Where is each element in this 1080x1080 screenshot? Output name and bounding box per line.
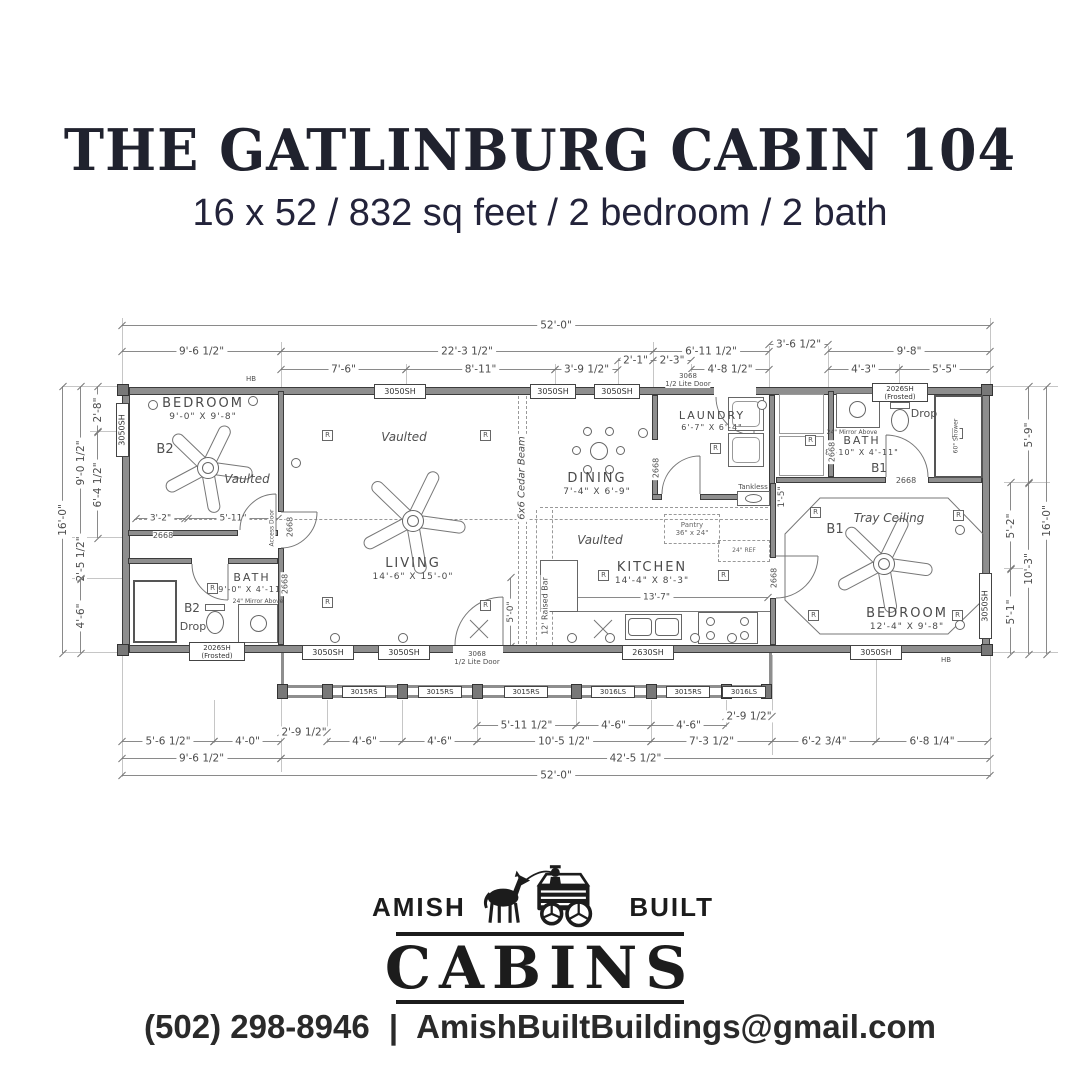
door-label-3068: 30681/2 Lite Door <box>454 650 499 666</box>
wall-light <box>955 525 965 535</box>
hose-bib: HB <box>246 375 256 383</box>
ceiling-note: Vaulted <box>381 430 426 444</box>
porch-post <box>322 684 333 699</box>
porch-post <box>571 684 582 699</box>
toilet <box>891 409 909 432</box>
window-2630sh: 2630SH <box>622 645 674 660</box>
rail-3015rs: 3015RS <box>504 686 548 698</box>
shower <box>133 580 177 643</box>
cedar-beam-label: 6x6 Cedar Beam <box>517 434 528 522</box>
toilet <box>206 611 224 634</box>
pantry: Pantry36" x 24" <box>664 514 720 544</box>
window-3050sh: 3050SH <box>594 384 640 399</box>
door-arc <box>662 456 700 494</box>
wall-light <box>330 633 340 643</box>
refrigerator: 24" REF <box>718 540 770 562</box>
wall-light <box>638 428 648 438</box>
wall-light <box>148 400 158 410</box>
kitchen-sink <box>628 618 652 636</box>
vanity-sink <box>250 615 267 632</box>
door-code: 2668 <box>828 440 837 464</box>
mirror-note: 24" Mirror Above <box>827 429 878 436</box>
porch-post <box>472 684 483 699</box>
wall-light <box>398 633 408 643</box>
wall-light <box>727 633 737 643</box>
room-kitchen: KITCHEN14'-4" X 8'-3" <box>615 560 689 586</box>
wall-light <box>248 396 258 406</box>
wall-light <box>605 633 615 643</box>
rail-3016ls: 3016LS <box>591 686 635 698</box>
window-3050sh: 3050SH <box>850 645 902 660</box>
rail-3015rs: 3015RS <box>666 686 710 698</box>
burner <box>740 631 749 640</box>
door-label-3068: 30681/2 Lite Door <box>665 372 710 388</box>
window-2026sh-frosted: 2026SH(Frosted) <box>872 383 928 402</box>
recessed-light: R <box>480 430 491 441</box>
hose-bib: HB <box>941 656 951 664</box>
room-laundry: LAUNDRY6'-7" X 6'-4" <box>679 409 745 432</box>
tankless-water-heater <box>745 494 762 503</box>
burner <box>706 631 715 640</box>
corner-post <box>117 644 129 656</box>
flyer-page: THE GATLINBURG CABIN 104 16 x 52 / 832 s… <box>0 0 1080 1080</box>
door-code: 2668 <box>281 572 290 596</box>
dimension: 1'-5" <box>777 484 787 509</box>
closet-shelf <box>779 436 824 476</box>
room-living: LIVING14'-6" X 15'-0" <box>373 556 454 582</box>
wall-light <box>567 633 577 643</box>
rail-3015rs: 3015RS <box>418 686 462 698</box>
rail-3016ls: 3016LS <box>722 686 766 698</box>
room-tag: B2 <box>156 442 173 457</box>
recessed-light: R <box>810 507 821 518</box>
room-tag: B2 <box>184 601 200 615</box>
counter-x <box>470 620 488 638</box>
recessed-light: R <box>207 583 218 594</box>
recessed-light: R <box>808 610 819 621</box>
ceiling-note: Vaulted <box>577 533 622 547</box>
burner <box>706 617 715 626</box>
toilet <box>890 402 910 409</box>
window-3050sh: 3050SH <box>378 645 430 660</box>
door-code: 2668 <box>770 566 779 590</box>
drop-ceiling-note: Drop <box>180 620 206 633</box>
door-arc <box>455 597 503 645</box>
drop-ceiling-note: Drop <box>911 407 937 420</box>
recessed-light: R <box>480 600 491 611</box>
mirror-note: 24" Mirror Above <box>233 598 284 605</box>
door-code: 2668 <box>286 515 295 539</box>
ceiling-note: Vaulted <box>224 472 269 486</box>
shower-size-note: 60" Shower <box>953 417 960 456</box>
porch-post <box>646 684 657 699</box>
door-code: 2668 <box>652 456 661 480</box>
recessed-light: R <box>710 443 721 454</box>
recessed-light: R <box>322 597 333 608</box>
corner-post <box>117 384 129 396</box>
door-code: 2668 <box>153 531 173 540</box>
door-arc <box>776 556 818 598</box>
window-3050sh: 3050SH <box>374 384 426 399</box>
window-2026sh-frosted: 2026SH(Frosted) <box>189 642 245 661</box>
door-code: 2668 <box>896 476 916 485</box>
room-dining: DINING7'-4" X 6'-9" <box>563 471 631 497</box>
wall-light <box>757 400 767 410</box>
plan-linework <box>0 0 1080 1080</box>
closet-shelf <box>779 394 824 434</box>
wall-light <box>955 620 965 630</box>
window-3050sh: 3050SH <box>979 573 992 639</box>
recessed-light: R <box>718 570 729 581</box>
room-bath2: BATH9'-0" X 4'-11" <box>218 571 286 594</box>
rail-3015rs: 3015RS <box>342 686 386 698</box>
raised-bar-label: 12' Raised Bar <box>541 575 550 637</box>
recessed-light: R <box>953 510 964 521</box>
toilet <box>205 604 225 611</box>
burner <box>740 617 749 626</box>
recessed-light: R <box>598 570 609 581</box>
recessed-light: R <box>322 430 333 441</box>
kitchen-sink <box>655 618 679 636</box>
window-3050sh: 3050SH <box>116 403 129 457</box>
access-door-note: Access Door <box>269 508 276 549</box>
room-tag: B1 <box>826 522 843 537</box>
wall-light <box>291 458 301 468</box>
window-3050sh: 3050SH <box>302 645 354 660</box>
ceiling-note: Tray Ceiling <box>854 511 925 525</box>
dryer <box>728 433 764 467</box>
room-bedroom2: BEDROOM9'-0" X 9'-8" <box>162 396 244 422</box>
porch-post <box>397 684 408 699</box>
wall-light <box>690 633 700 643</box>
recessed-light: R <box>805 435 816 446</box>
corner-post <box>981 644 993 656</box>
tankless-label: Tankless <box>738 483 767 491</box>
vanity-sink <box>849 401 866 418</box>
room-tag: B1 <box>871 461 887 475</box>
door-opening <box>714 385 756 396</box>
window-3050sh: 3050SH <box>530 384 576 399</box>
porch-post <box>277 684 288 699</box>
room-bedroom1: BEDROOM12'-4" X 9'-8" <box>866 606 948 632</box>
